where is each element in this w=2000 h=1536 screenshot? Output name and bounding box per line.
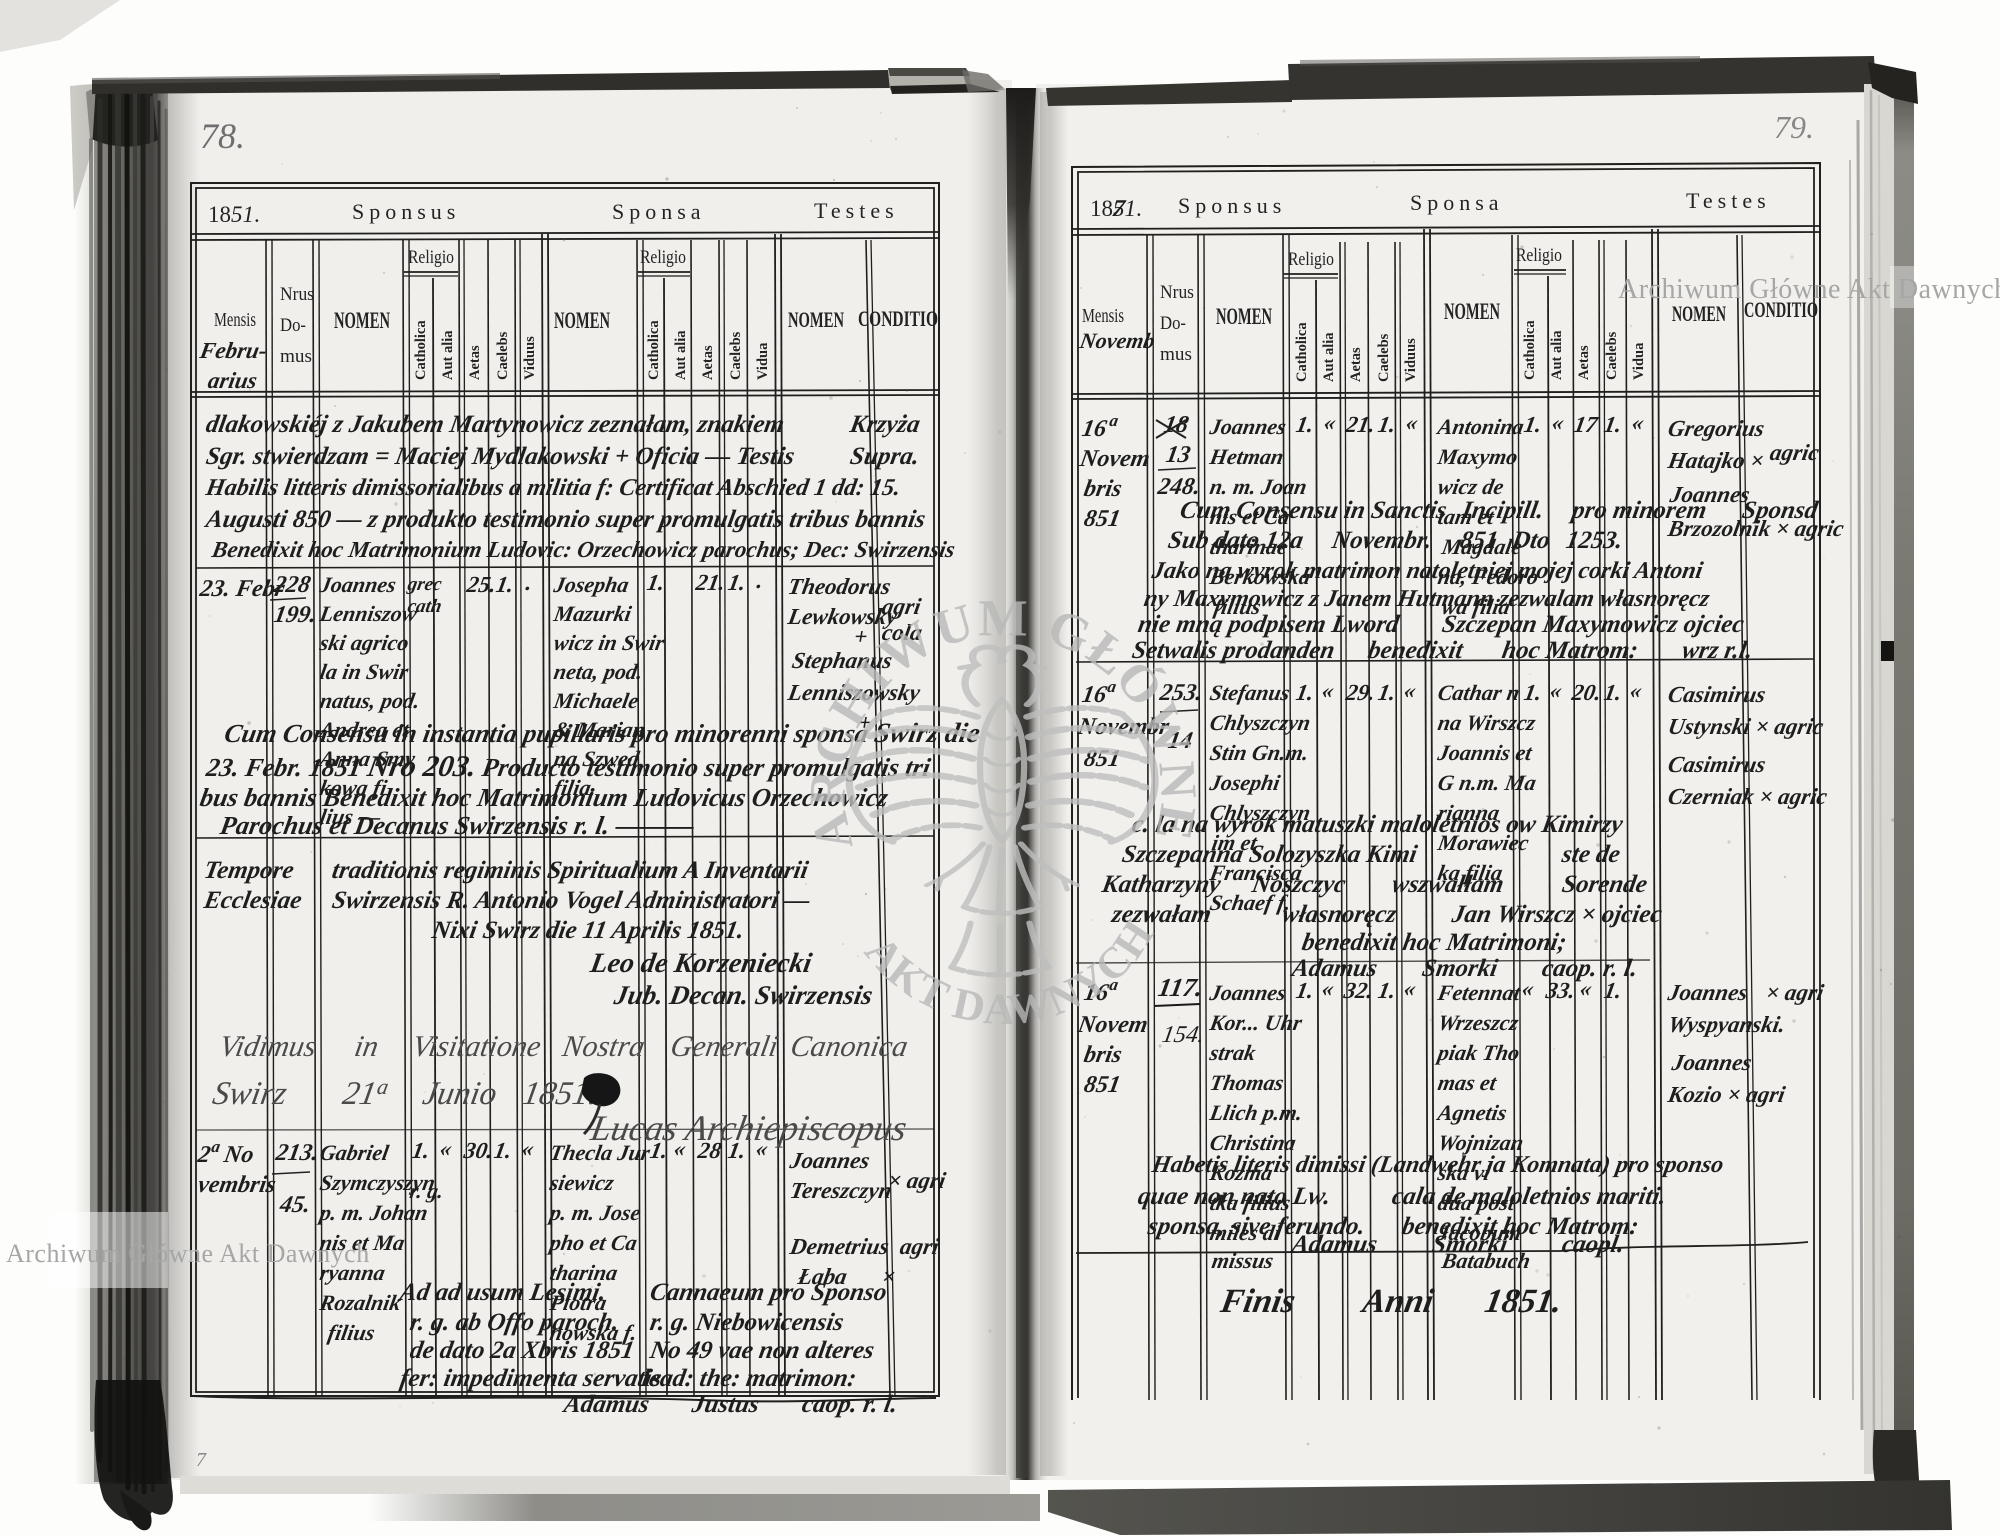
svg-text:× agri: × agri [886, 1168, 948, 1194]
svg-text:Do-: Do- [280, 315, 306, 336]
svg-text:No: No [221, 1141, 256, 1168]
svg-text:Kor... Uhr: Kor... Uhr [1207, 1010, 1304, 1035]
svg-text:grec: grec [405, 574, 444, 595]
svg-text:7: 7 [196, 1449, 207, 1471]
svg-text:21.: 21. [693, 570, 727, 596]
svg-text:Viduus: Viduus [1403, 338, 1419, 382]
svg-text:Caelebs: Caelebs [1376, 333, 1392, 382]
svg-text:33.: 33. [1543, 978, 1577, 1004]
svg-text:r. g.: r. g. [408, 1179, 445, 1203]
svg-text:213.: 213. [273, 1139, 321, 1166]
svg-text:Archiwum Główne Akt Dawnych: Archiwum Główne Akt Dawnych [1618, 274, 2000, 305]
svg-text:na Wirszcz: na Wirszcz [1436, 710, 1538, 735]
svg-text:18: 18 [1162, 411, 1191, 438]
svg-text:filius: filius [326, 1320, 377, 1345]
svg-text:Catholica: Catholica [413, 320, 429, 380]
svg-text:Antonina: Antonina [1434, 414, 1526, 439]
svg-text:Fetennat: Fetennat [1435, 980, 1523, 1005]
svg-text:CONDITIO: CONDITIO [858, 306, 938, 331]
svg-text:Joannes: Joannes [787, 1148, 872, 1174]
svg-text:Gregorius: Gregorius [1666, 416, 1766, 442]
svg-text:Aut alia: Aut alia [440, 330, 456, 380]
svg-text:851: 851 [1082, 505, 1123, 532]
svg-text:79.: 79. [1774, 109, 1814, 145]
svg-text:p. m. Jose: p. m. Jose [546, 1200, 643, 1225]
svg-text:Novemb: Novemb [1077, 328, 1157, 353]
svg-text:mas et: mas et [1436, 1070, 1499, 1095]
svg-text:Maxymo: Maxymo [1435, 444, 1520, 469]
svg-text:NOMEN: NOMEN [554, 308, 610, 333]
svg-text:Wrzeszcz: Wrzeszcz [1436, 1010, 1521, 1035]
svg-text:vembris: vembris [196, 1171, 278, 1198]
svg-text:Llich p.m.: Llich p.m. [1207, 1100, 1305, 1125]
svg-text:Finis Anni 1851.: Finis Anni 1851. [1217, 1282, 1565, 1320]
svg-text:wicz de: wicz de [1436, 474, 1506, 499]
svg-text:45.: 45. [277, 1191, 313, 1218]
svg-text:NOMEN: NOMEN [788, 307, 844, 332]
svg-text:benedixit hoc Matrimoni;: benedixit hoc Matrimoni; [1300, 929, 1569, 956]
svg-text:Joannes: Joannes [1207, 414, 1288, 439]
svg-text:28: 28 [695, 1138, 724, 1164]
svg-text:Demetrius agri: Demetrius agri [787, 1234, 941, 1260]
svg-text:Joannes: Joannes [1207, 980, 1288, 1005]
svg-text:228: 228 [271, 571, 313, 598]
svg-text:29.: 29. [1343, 680, 1377, 706]
svg-text:20.: 20. [1569, 680, 1603, 706]
svg-text:Novem: Novem [1077, 445, 1152, 472]
svg-text:851: 851 [1082, 1071, 1123, 1098]
svg-text:Agnetis: Agnetis [1434, 1100, 1509, 1125]
svg-text:Hatajko ×: Hatajko × [1665, 448, 1766, 474]
svg-text:natus, pod.: natus, pod. [318, 688, 422, 713]
svg-text:Catholica: Catholica [1294, 322, 1310, 382]
svg-text:Josepha: Josepha [551, 572, 631, 597]
svg-text:25.: 25. [464, 572, 498, 598]
svg-text:Nrus: Nrus [1160, 282, 1194, 303]
svg-text:Joannis et: Joannis et [1435, 740, 1535, 765]
svg-text:Theodorus: Theodorus [786, 574, 893, 600]
svg-text:mus: mus [1160, 344, 1192, 365]
svg-text:mus: mus [280, 346, 312, 367]
svg-text:NOMEN: NOMEN [1216, 304, 1272, 329]
svg-text:Testes: Testes [814, 198, 899, 223]
svg-text:78.: 78. [200, 116, 245, 156]
svg-text:Aetas: Aetas [700, 345, 716, 380]
svg-text:p. m. Johan: p. m. Johan [316, 1200, 430, 1225]
svg-text:Sponsa: Sponsa [1410, 190, 1504, 215]
svg-text:Vidua: Vidua [1631, 342, 1647, 380]
svg-text:Habetis literis dimissi (Landw: Habetis literis dimissi (Landwehr ja Kom… [1149, 1151, 1726, 1178]
svg-text:1851.: 1851. [208, 202, 260, 227]
svg-text:Tereszczyn: Tereszczyn [788, 1178, 894, 1204]
svg-text:bris: bris [1082, 475, 1124, 502]
svg-text:Thomas: Thomas [1208, 1070, 1286, 1095]
svg-text:Religio: Religio [640, 247, 686, 268]
svg-text:Caelebs: Caelebs [728, 331, 744, 380]
svg-text:13: 13 [1164, 441, 1193, 468]
svg-text:Jub. Decan. Swirzensis: Jub. Decan. Swirzensis [611, 980, 875, 1010]
svg-text:neta, pod.: neta, pod. [552, 659, 645, 684]
svg-text:Aetas: Aetas [467, 345, 483, 380]
svg-text:Michaele: Michaele [551, 688, 641, 713]
svg-text:strak: strak [1207, 1040, 1258, 1065]
svg-text:Joannes: Joannes [1669, 1050, 1754, 1076]
svg-text:agric: agric [1768, 440, 1821, 466]
svg-text:Augusti 850 — z produkto testi: Augusti 850 — z produkto testimonio supe… [202, 506, 928, 533]
svg-text:Sponsa: Sponsa [612, 199, 706, 224]
svg-text:Habilis litteris dimissorialib: Habilis litteris dimissorialibus a milit… [203, 474, 903, 501]
svg-text:Adamus Smorki caopl.: Adamus Smorki caopl. [1288, 1231, 1626, 1258]
svg-text:Do-: Do- [1160, 313, 1186, 334]
svg-text:piak Tho: piak Tho [1434, 1040, 1522, 1065]
svg-text:Sponsus: Sponsus [352, 199, 460, 224]
svg-text:Jako na wyrok matrimon natolet: Jako na wyrok matrimon natoletniej mojej… [1149, 557, 1705, 584]
svg-text:wicz in Swir: wicz in Swir [552, 630, 667, 655]
svg-text:Catholica: Catholica [646, 320, 662, 380]
svg-text:bris: bris [1082, 1041, 1124, 1068]
svg-text:248.: 248. [1155, 473, 1203, 500]
svg-text:Lenniszow: Lenniszow [317, 601, 419, 626]
svg-text:Nrus: Nrus [280, 284, 314, 305]
svg-text:Stin Gn.m.: Stin Gn.m. [1208, 740, 1311, 765]
svg-text:30.: 30. [461, 1138, 495, 1164]
svg-text:pho et Ca: pho et Ca [546, 1230, 639, 1255]
svg-text:Aetas: Aetas [1576, 345, 1592, 380]
svg-text:Aetas: Aetas [1348, 347, 1364, 382]
svg-text:missus: missus [1210, 1248, 1275, 1273]
svg-text:NOMEN: NOMEN [1444, 299, 1500, 324]
svg-text:Casimirus: Casimirus [1666, 682, 1768, 708]
svg-text:Cathar n: Cathar n [1436, 680, 1522, 705]
svg-text:Chlyszczyn: Chlyszczyn [1208, 710, 1313, 735]
svg-text:Ecclesiae Swirzensis R. Antoni: Ecclesiae Swirzensis R. Antonio Vogel Ad… [201, 887, 813, 914]
svg-text:NOMEN: NOMEN [334, 308, 390, 333]
svg-text:Febru-: Febru- [197, 338, 269, 364]
svg-text:Benedixit hoc Matrimonium Ludo: Benedixit hoc Matrimonium Ludovic: Orzec… [209, 537, 957, 563]
svg-text:Kozio × agri: Kozio × agri [1665, 1082, 1788, 1108]
svg-text:Josephi: Josephi [1207, 770, 1283, 795]
svg-text:Testes: Testes [1686, 188, 1771, 213]
svg-text:Joannes: Joannes [317, 572, 398, 597]
svg-text:Caelebs: Caelebs [495, 331, 511, 380]
svg-text:n. m. Joan: n. m. Joan [1208, 474, 1309, 499]
svg-text:Sponsus: Sponsus [1178, 193, 1286, 218]
svg-text:Adamus Justus caop. r. l.: Adamus Justus caop. r. l. [560, 1391, 900, 1418]
svg-text:Catholica: Catholica [1522, 320, 1538, 380]
svg-text:199.: 199. [272, 601, 319, 628]
svg-text:Czerniak × agric: Czerniak × agric [1666, 784, 1829, 810]
svg-text:Religio: Religio [1288, 249, 1334, 270]
svg-text:fer: impedimenta servatis lead: fer: impedimenta servatis lead: the: mat… [398, 1365, 859, 1392]
svg-text:Leo de Korzeniecki: Leo de Korzeniecki [587, 948, 814, 979]
svg-text:Joannes × agri: Joannes × agri [1665, 980, 1826, 1006]
svg-text:Aut alia: Aut alia [1549, 330, 1565, 380]
svg-text:Archiwum Główne Akt Dawnych: Archiwum Główne Akt Dawnych [6, 1239, 370, 1268]
svg-text:Aut alia: Aut alia [1321, 332, 1337, 382]
svg-text:Nixi Swirz die 11 Aprilis 1851: Nixi Swirz die 11 Aprilis 1851. [429, 917, 746, 944]
svg-text:arius: arius [206, 368, 259, 394]
svg-text:Gabriel: Gabriel [318, 1140, 392, 1165]
svg-text:Mensis: Mensis [1082, 305, 1124, 327]
svg-text:Religio: Religio [408, 247, 454, 268]
svg-text:Casimirus: Casimirus [1666, 752, 1768, 778]
svg-text:Caelebs: Caelebs [1604, 331, 1620, 380]
svg-text:Viduus: Viduus [522, 336, 538, 380]
svg-text:ny Maxymowicz z Janem Hutmann: ny Maxymowicz z Janem Hutmann zezwalam w… [1142, 585, 1712, 612]
svg-text:154.: 154. [1160, 1021, 1207, 1048]
svg-text:Aut alia: Aut alia [673, 330, 689, 380]
svg-text:Parochus et Decanus Swirzensis: Parochus et Decanus Swirzensis r. l. ——— [217, 811, 697, 840]
svg-text:Rozalnik: Rozalnik [317, 1290, 403, 1315]
svg-text:Novem: Novem [1075, 1011, 1150, 1038]
svg-text:Thecla Jur: Thecla Jur [548, 1140, 652, 1165]
svg-text:zezwałam własnoręcz Jan Wirszc: zezwałam własnoręcz Jan Wirszcz × ojciec [1109, 901, 1664, 928]
svg-text:Hetman: Hetman [1207, 444, 1286, 469]
svg-text:21.: 21. [1343, 412, 1377, 438]
svg-text:Mazurki: Mazurki [551, 601, 634, 626]
svg-text:la in Swir: la in Swir [318, 659, 411, 684]
svg-text:Mensis: Mensis [214, 309, 256, 331]
svg-text:Ustynski × agric: Ustynski × agric [1666, 714, 1825, 740]
svg-text:quae non nato Lw. cala de malo: quae non nato Lw. cala de maloletnios ma… [1136, 1183, 1668, 1210]
svg-text:Wyspyanski.: Wyspyanski. [1666, 1012, 1787, 1038]
svg-text:117.: 117. [1156, 973, 1205, 1002]
svg-text:siewicz: siewicz [547, 1170, 616, 1195]
svg-text:Stefanus: Stefanus [1208, 680, 1292, 705]
svg-text:Tempore traditionis regiminis: Tempore traditionis regiminis Spirituali… [202, 857, 810, 884]
svg-text:32.: 32. [1341, 978, 1375, 1004]
svg-text:Vidua: Vidua [755, 342, 771, 380]
svg-text:G n.m. Ma: G n.m. Ma [1436, 770, 1538, 795]
svg-text:cath: cath [406, 596, 443, 617]
svg-text:ski agrico: ski agrico [317, 630, 411, 655]
svg-text:bus bannis Benedixit hoc Matri: bus bannis Benedixit hoc Matrimonium Lud… [198, 783, 891, 812]
